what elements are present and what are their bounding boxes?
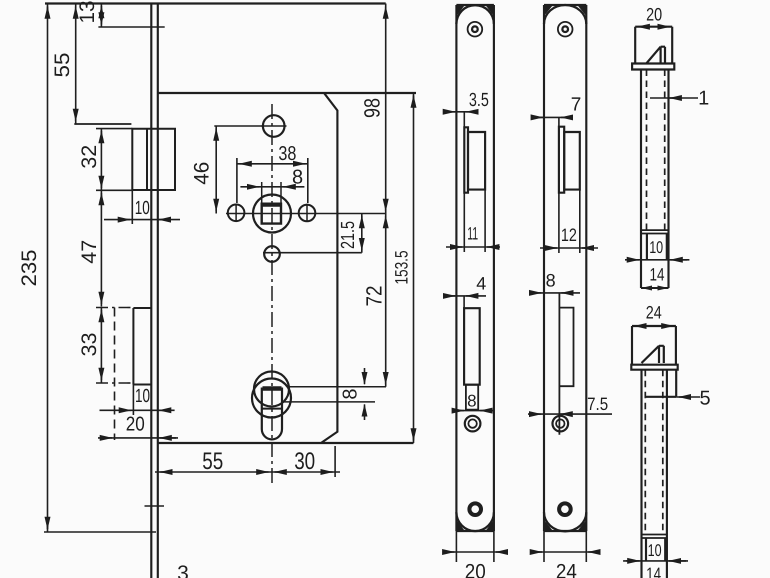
svg-text:10: 10	[135, 386, 150, 407]
svg-text:55: 55	[202, 448, 223, 475]
svg-text:32: 32	[78, 145, 101, 169]
svg-text:10: 10	[648, 541, 662, 560]
svg-text:20: 20	[465, 561, 486, 578]
svg-text:7.5: 7.5	[587, 394, 608, 414]
svg-text:55: 55	[51, 53, 74, 78]
svg-text:153.5: 153.5	[392, 251, 412, 285]
svg-text:5: 5	[699, 388, 710, 410]
svg-text:11: 11	[467, 224, 478, 244]
svg-text:30: 30	[294, 448, 315, 475]
svg-text:7: 7	[571, 95, 582, 116]
svg-text:10: 10	[649, 238, 663, 257]
svg-text:20: 20	[126, 414, 145, 436]
svg-text:10: 10	[135, 198, 150, 219]
svg-text:8: 8	[340, 388, 362, 399]
svg-text:14: 14	[646, 564, 661, 578]
svg-text:8: 8	[467, 392, 476, 411]
svg-text:3: 3	[177, 562, 189, 578]
svg-text:38: 38	[278, 143, 296, 165]
svg-text:12: 12	[561, 225, 577, 245]
svg-text:13: 13	[76, 1, 99, 24]
svg-text:235: 235	[18, 250, 41, 287]
svg-text:3.5: 3.5	[469, 90, 489, 111]
svg-text:33: 33	[78, 333, 101, 357]
svg-text:4: 4	[476, 274, 486, 294]
svg-text:46: 46	[190, 162, 213, 185]
svg-text:21.5: 21.5	[338, 221, 359, 249]
svg-text:24: 24	[556, 561, 577, 578]
svg-text:24: 24	[646, 303, 662, 323]
svg-text:14: 14	[650, 265, 665, 285]
svg-text:72: 72	[362, 286, 387, 307]
svg-text:1: 1	[698, 88, 709, 110]
svg-text:8: 8	[546, 271, 556, 291]
svg-text:47: 47	[78, 240, 101, 264]
svg-text:8: 8	[292, 167, 303, 189]
svg-text:20: 20	[646, 5, 662, 25]
svg-text:98: 98	[359, 98, 384, 118]
